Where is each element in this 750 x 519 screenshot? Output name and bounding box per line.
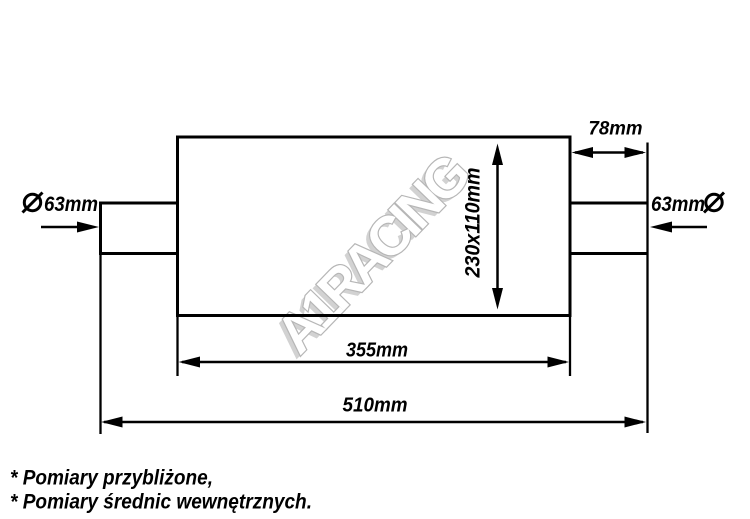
svg-text:* Pomiary przybliżone,: * Pomiary przybliżone,: [10, 467, 213, 490]
svg-text:63mm: 63mm: [44, 193, 98, 216]
svg-text:510mm: 510mm: [343, 395, 408, 417]
svg-text:* Pomiary średnic wewnętrznych: * Pomiary średnic wewnętrznych.: [10, 491, 312, 514]
svg-text:230x110mm: 230x110mm: [462, 168, 485, 279]
svg-text:355mm: 355mm: [346, 340, 408, 362]
svg-text:63mm: 63mm: [651, 193, 705, 216]
svg-text:78mm: 78mm: [589, 119, 643, 140]
